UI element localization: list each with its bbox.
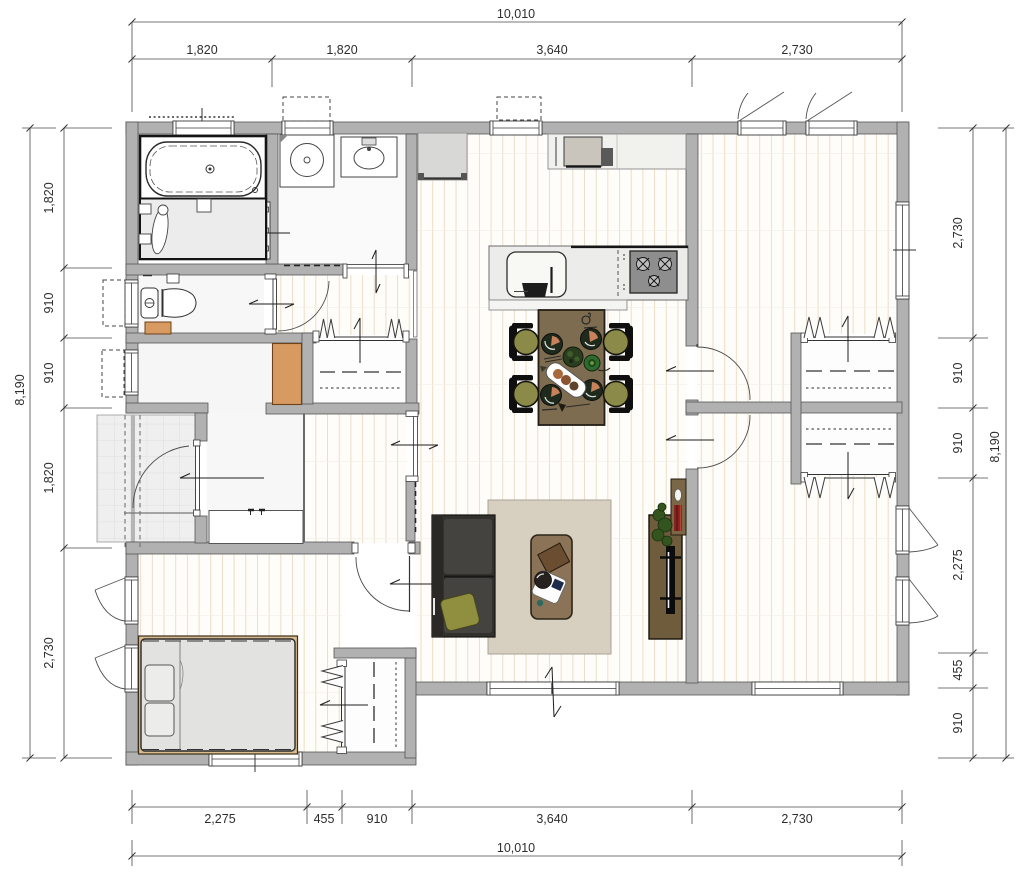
svg-text:2,730: 2,730 bbox=[42, 637, 56, 668]
svg-text:1,820: 1,820 bbox=[326, 43, 357, 57]
svg-text:3,640: 3,640 bbox=[536, 812, 567, 826]
svg-text:910: 910 bbox=[951, 433, 965, 454]
svg-text:910: 910 bbox=[951, 363, 965, 384]
svg-text:8,190: 8,190 bbox=[988, 431, 1002, 462]
svg-text:1,820: 1,820 bbox=[186, 43, 217, 57]
svg-text:10,010: 10,010 bbox=[497, 841, 535, 855]
svg-text:10,010: 10,010 bbox=[497, 7, 535, 21]
svg-text:910: 910 bbox=[367, 812, 388, 826]
svg-text:910: 910 bbox=[951, 713, 965, 734]
svg-text:1,820: 1,820 bbox=[42, 182, 56, 213]
svg-text:3,640: 3,640 bbox=[536, 43, 567, 57]
svg-text:2,275: 2,275 bbox=[951, 549, 965, 580]
svg-text:455: 455 bbox=[951, 660, 965, 681]
svg-text:2,730: 2,730 bbox=[951, 217, 965, 248]
svg-text:2,730: 2,730 bbox=[781, 812, 812, 826]
svg-text:455: 455 bbox=[314, 812, 335, 826]
svg-text:910: 910 bbox=[42, 293, 56, 314]
svg-text:2,730: 2,730 bbox=[781, 43, 812, 57]
svg-text:1,820: 1,820 bbox=[42, 462, 56, 493]
svg-text:8,190: 8,190 bbox=[13, 374, 27, 405]
svg-text:910: 910 bbox=[42, 363, 56, 384]
svg-text:2,275: 2,275 bbox=[204, 812, 235, 826]
